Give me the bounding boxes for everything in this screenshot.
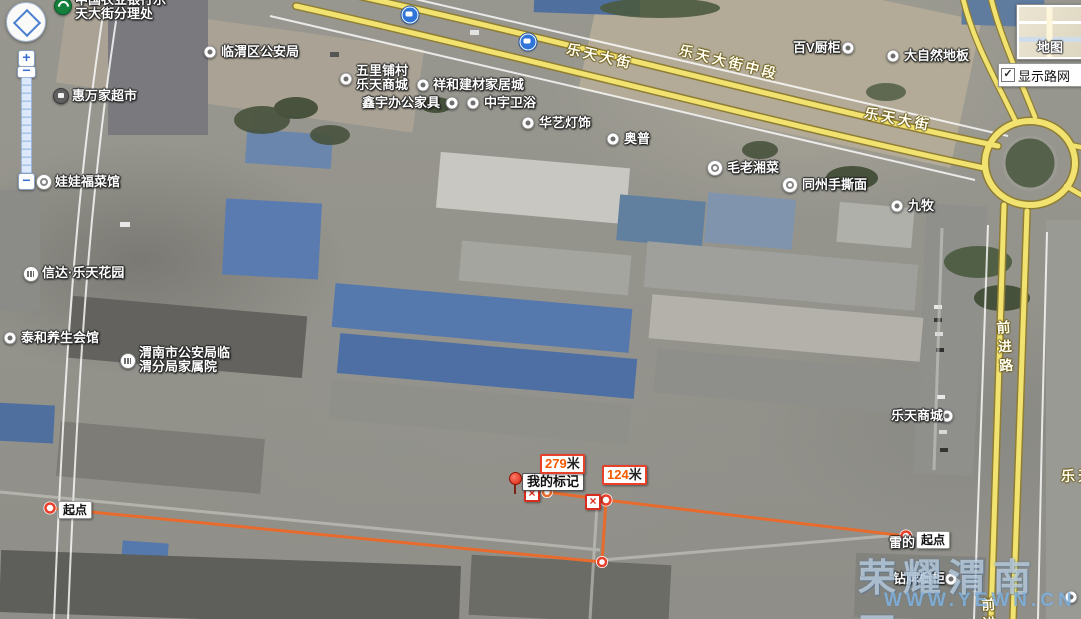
measure-start-label-left: 起点 — [58, 501, 92, 519]
poi-label[interactable]: 钻牌橱柜 — [893, 572, 945, 586]
poi-label[interactable]: 毛老湘菜 — [727, 161, 779, 175]
poi-label[interactable]: 同州手撕面 — [802, 178, 867, 192]
poi-label[interactable]: 渭南市公安局临渭分局家属院 — [139, 346, 230, 374]
bus-stop-icon[interactable] — [402, 7, 419, 24]
poi-dot-icon[interactable] — [467, 97, 480, 110]
zoom-out-button[interactable]: − — [18, 173, 35, 190]
poi-dot-icon[interactable] — [522, 117, 535, 130]
measure-point-junction — [600, 494, 613, 507]
poi-label[interactable]: 祥和建材家居城 — [433, 78, 524, 92]
poi-label[interactable]: 娃娃福菜馆 — [55, 175, 120, 189]
bus-stop-icon[interactable] — [520, 34, 537, 51]
poi-dot-icon[interactable] — [340, 73, 353, 86]
distance-unit: 米 — [567, 456, 580, 471]
delete-measurement-button[interactable]: × — [585, 494, 601, 510]
poi-label[interactable]: 九牧 — [908, 199, 934, 213]
restaurant-icon[interactable] — [782, 177, 798, 193]
distance-label-124m: 124米 — [602, 465, 647, 485]
poi-label[interactable]: 乐天商城 — [891, 409, 943, 423]
supermarket-icon[interactable] — [53, 88, 69, 104]
poi-label[interactable]: 信达·乐天花园 — [42, 266, 124, 280]
layer-switcher-label: 地图 — [1037, 37, 1063, 56]
building-icon[interactable] — [120, 353, 136, 369]
poi-label[interactable]: 鑫宇办公家具 — [362, 96, 440, 110]
measure-point-start-left — [44, 502, 57, 515]
pin-head — [509, 472, 522, 485]
measure-start-label-right: 起点 — [916, 531, 950, 549]
poi-label[interactable]: 雷的 — [889, 536, 915, 550]
poi-dot-icon[interactable] — [204, 46, 217, 59]
map-application: 乐天大街乐天大街中段乐天大街前进路前进乐天 中国农业银行乐天大街分理处临渭区公安… — [0, 0, 1081, 619]
poi-label[interactable]: 五里铺村乐天商城 — [356, 64, 408, 92]
layer-switcher-button[interactable]: 地图 — [1016, 4, 1081, 60]
poi-label[interactable]: 惠万家超市 — [72, 89, 137, 103]
poi-dot-icon[interactable] — [945, 573, 958, 586]
road-network-panel: ✓ 显示路网 — [998, 63, 1081, 87]
poi-label[interactable]: 中宇卫浴 — [484, 96, 536, 110]
distance-unit: 米 — [629, 467, 642, 482]
road-network-label: 显示路网 — [1018, 66, 1070, 85]
distance-value: 124 — [607, 467, 629, 482]
my-marker-label[interactable]: 我的标记 — [522, 473, 584, 491]
poi-label[interactable]: 百V厨柜 — [793, 41, 841, 55]
poi-dot-icon[interactable] — [1065, 591, 1078, 604]
layer-thumbnail: 地图 — [1019, 7, 1081, 57]
measure-point-corner — [596, 556, 608, 568]
pan-control[interactable] — [6, 2, 46, 42]
restaurant-icon[interactable] — [707, 160, 723, 176]
poi-dot-icon[interactable] — [607, 133, 620, 146]
poi-dot-icon[interactable] — [417, 79, 430, 92]
map-canvas[interactable] — [0, 0, 1081, 619]
road-network-checkbox[interactable]: ✓ — [1001, 68, 1015, 82]
poi-label[interactable]: 中国农业银行乐天大街分理处 — [75, 0, 166, 21]
distance-value: 279 — [545, 456, 567, 471]
restaurant-icon[interactable] — [36, 174, 52, 190]
poi-dot-icon[interactable] — [4, 332, 17, 345]
poi-label[interactable]: 临渭区公安局 — [221, 45, 299, 59]
poi-label[interactable]: 大自然地板 — [904, 49, 969, 63]
poi-label[interactable]: 奥普 — [624, 132, 650, 146]
poi-label[interactable]: 泰和养生会馆 — [21, 331, 99, 345]
poi-label[interactable]: 华艺灯饰 — [539, 116, 591, 130]
building-icon[interactable] — [23, 266, 39, 282]
poi-dot-icon[interactable] — [891, 200, 904, 213]
poi-dot-icon[interactable] — [842, 42, 855, 55]
poi-dot-icon[interactable] — [887, 50, 900, 63]
poi-dot-icon[interactable] — [446, 97, 459, 110]
zoom-slider-track[interactable] — [21, 77, 32, 174]
distance-label-279m: 279米 — [540, 454, 585, 474]
